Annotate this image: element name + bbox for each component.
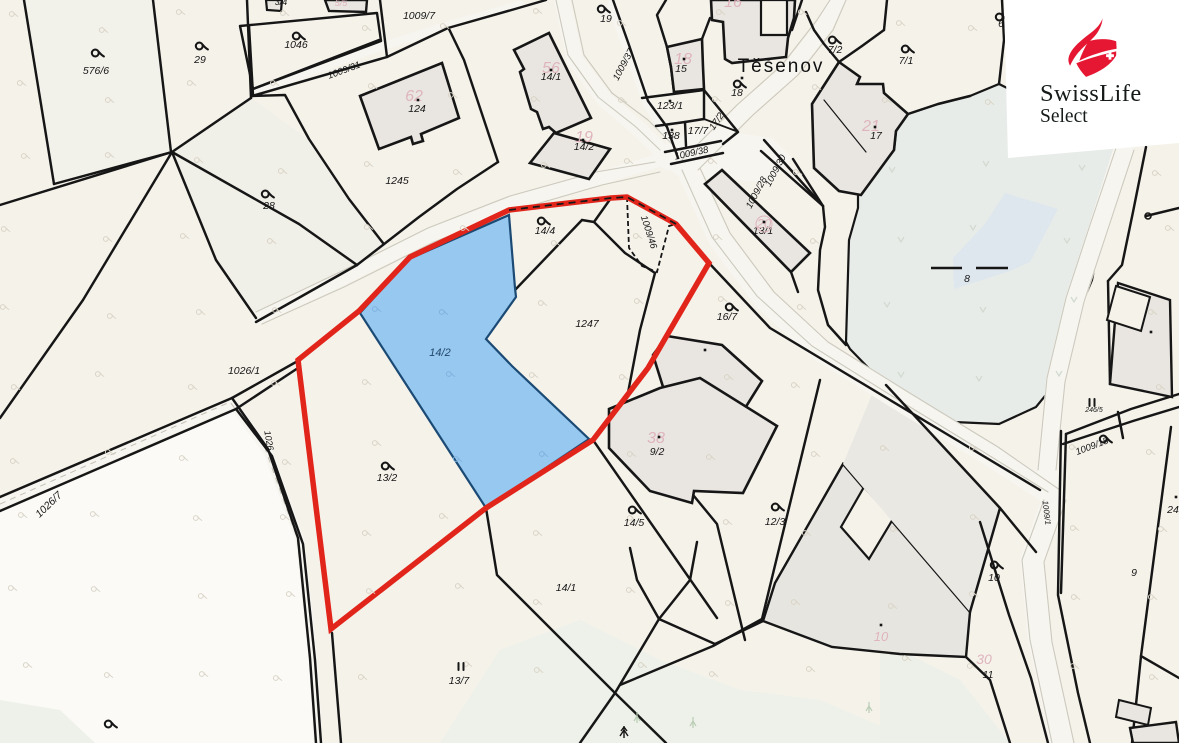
- svg-text:11: 11: [983, 669, 994, 681]
- svg-text:SwissLife: SwissLife: [1040, 80, 1142, 107]
- svg-text:14/4: 14/4: [535, 225, 556, 237]
- svg-text:17/7: 17/7: [688, 125, 710, 137]
- svg-text:14/2: 14/2: [429, 347, 450, 359]
- svg-text:18: 18: [731, 87, 743, 99]
- svg-text:38: 38: [647, 430, 665, 447]
- svg-text:9/2: 9/2: [650, 446, 665, 458]
- svg-text:1245: 1245: [385, 175, 409, 187]
- svg-text:138: 138: [662, 130, 680, 142]
- svg-text:19: 19: [575, 129, 593, 146]
- svg-text:246/5: 246/5: [1084, 407, 1103, 414]
- svg-text:56: 56: [542, 60, 560, 77]
- svg-text:24: 24: [1166, 504, 1179, 516]
- svg-text:9: 9: [1131, 567, 1137, 579]
- svg-text:21: 21: [861, 118, 880, 135]
- svg-text:Těšenov: Těšenov: [738, 56, 825, 77]
- svg-text:1247: 1247: [575, 318, 600, 330]
- svg-text:16: 16: [724, 0, 742, 11]
- svg-text:62: 62: [405, 88, 423, 105]
- svg-text:1009/7: 1009/7: [403, 10, 436, 22]
- svg-text:7/1: 7/1: [899, 55, 914, 67]
- svg-text:28: 28: [262, 200, 275, 212]
- svg-text:8: 8: [964, 273, 970, 285]
- svg-text:14/1: 14/1: [556, 582, 576, 594]
- svg-text:Select: Select: [1040, 106, 1088, 127]
- svg-text:10: 10: [874, 629, 889, 644]
- svg-text:13/7: 13/7: [449, 675, 471, 687]
- svg-text:14/5: 14/5: [624, 517, 645, 529]
- svg-text:10: 10: [988, 572, 1000, 584]
- svg-text:19: 19: [600, 13, 612, 25]
- svg-text:1046: 1046: [284, 39, 308, 51]
- svg-text:5/5: 5/5: [335, 0, 349, 8]
- svg-text:576/6: 576/6: [83, 65, 109, 77]
- svg-text:3/4: 3/4: [275, 0, 288, 7]
- svg-text:7/2: 7/2: [828, 44, 843, 56]
- svg-text:13/2: 13/2: [377, 472, 398, 484]
- svg-text:1026/1: 1026/1: [228, 365, 260, 377]
- svg-text:30: 30: [976, 651, 992, 667]
- svg-text:29: 29: [193, 54, 206, 66]
- svg-text:12/3: 12/3: [765, 516, 786, 528]
- svg-text:16/7: 16/7: [717, 311, 739, 323]
